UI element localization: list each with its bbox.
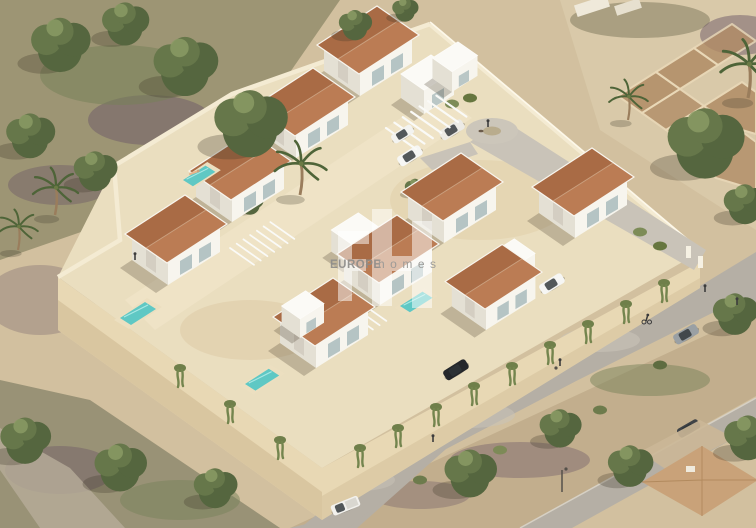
watermark-brand-name: EUROPE — [330, 259, 382, 271]
roof-skylight — [686, 466, 695, 472]
watermark-brand-suffix: homes — [378, 257, 442, 271]
dog — [479, 130, 484, 133]
aerial-render: EUROPE homes — [0, 0, 756, 528]
entrance-gate — [686, 246, 691, 258]
render-stage: EUROPE homes — [0, 0, 756, 528]
